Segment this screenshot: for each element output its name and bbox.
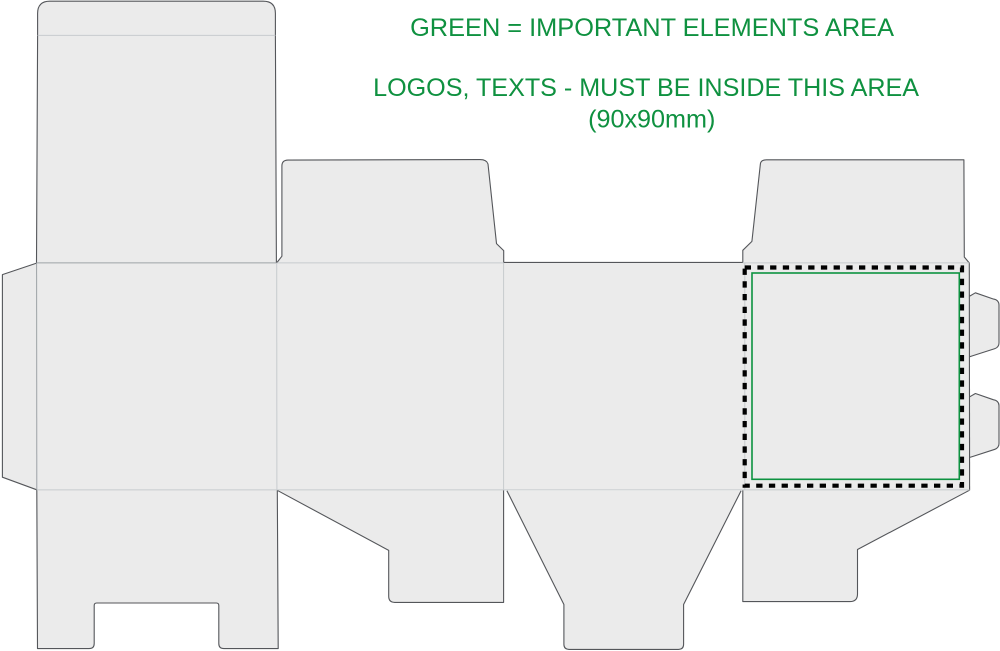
svg-text:GREEN = IMPORTANT ELEMENTS ARE: GREEN = IMPORTANT ELEMENTS AREA (410, 14, 894, 42)
svg-text:(90x90mm): (90x90mm) (588, 105, 715, 133)
svg-text:LOGOS, TEXTS - MUST BE INSIDE: LOGOS, TEXTS - MUST BE INSIDE THIS AREA (373, 74, 919, 102)
